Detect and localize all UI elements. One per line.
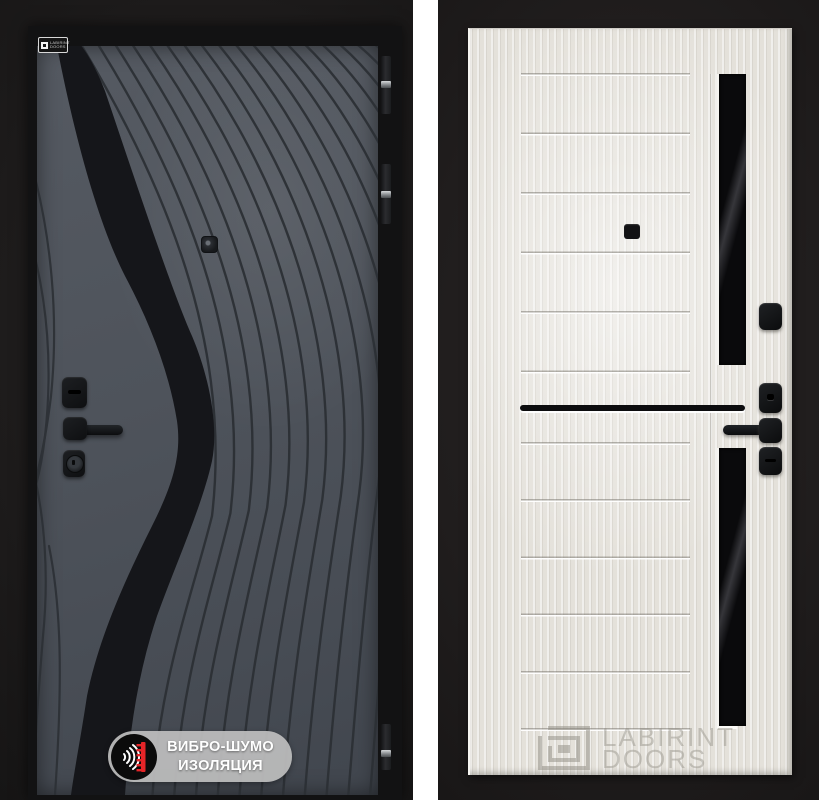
door-handle-base-interior[interactable]	[759, 418, 782, 443]
hinge-bottom	[381, 724, 391, 770]
keyhole	[767, 394, 774, 400]
watermark-text: LABIRINT DOORS	[602, 726, 735, 770]
brand-watermark: LABIRINT DOORS	[538, 726, 735, 772]
door-interior-image: LABIRINT DOORS	[438, 0, 819, 800]
cylinder-face	[66, 455, 84, 473]
keyhole-slot	[68, 390, 81, 394]
wave-pattern-graphic	[37, 46, 378, 795]
labyrinth-logo-icon	[538, 726, 592, 772]
badge-label: ВИБРО-ШУМО ИЗОЛЯЦИЯ	[157, 738, 292, 776]
lock-cylinder	[63, 450, 85, 477]
door-panel-interior: LABIRINT DOORS	[468, 28, 792, 775]
door-handle-base[interactable]	[63, 417, 87, 440]
hinge-top	[381, 56, 391, 114]
door-leaf: ВИБРО-ШУМО ИЗОЛЯЦИЯ LABIRINT DOORS	[28, 26, 402, 800]
panel-vertical-edge	[710, 74, 712, 730]
hinge-ring	[381, 81, 391, 88]
horizontal-grooves-upper	[521, 73, 690, 374]
horizontal-grooves-lower	[521, 442, 690, 734]
brand-label: LABIRINT DOORS	[38, 37, 68, 53]
door-panel-pattern: ВИБРО-ШУМО ИЗОЛЯЦИЯ	[37, 46, 378, 795]
watermark-line-2: DOORS	[602, 744, 707, 774]
hinge-ring	[381, 750, 391, 757]
keyhole	[72, 460, 75, 465]
door-exterior-image: ВИБРО-ШУМО ИЗОЛЯЦИЯ LABIRINT DOORS	[0, 0, 413, 800]
peephole	[201, 236, 218, 253]
lock-escutcheon	[62, 377, 87, 408]
night-latch	[759, 447, 782, 475]
lock-escutcheon-interior	[759, 383, 782, 413]
black-accent-stripe	[520, 405, 745, 411]
peephole-interior	[624, 224, 640, 239]
sound-wave-icon	[111, 734, 157, 780]
glass-insert-upper	[717, 74, 746, 365]
hinge-ring	[381, 191, 391, 198]
lock-turn-knob	[759, 303, 782, 330]
latch-slot	[765, 459, 776, 462]
glass-insert-lower	[717, 448, 746, 726]
noise-insulation-badge: ВИБРО-ШУМО ИЗОЛЯЦИЯ	[108, 731, 292, 782]
badge-line-1: ВИБРО-ШУМО	[167, 739, 274, 755]
hinge-middle	[381, 164, 391, 224]
labyrinth-logo-icon	[41, 42, 48, 49]
brand-label-line-2: DOORS	[50, 45, 70, 49]
product-image-pair: ВИБРО-ШУМО ИЗОЛЯЦИЯ LABIRINT DOORS	[0, 0, 819, 800]
badge-line-2: ИЗОЛЯЦИЯ	[178, 758, 263, 774]
